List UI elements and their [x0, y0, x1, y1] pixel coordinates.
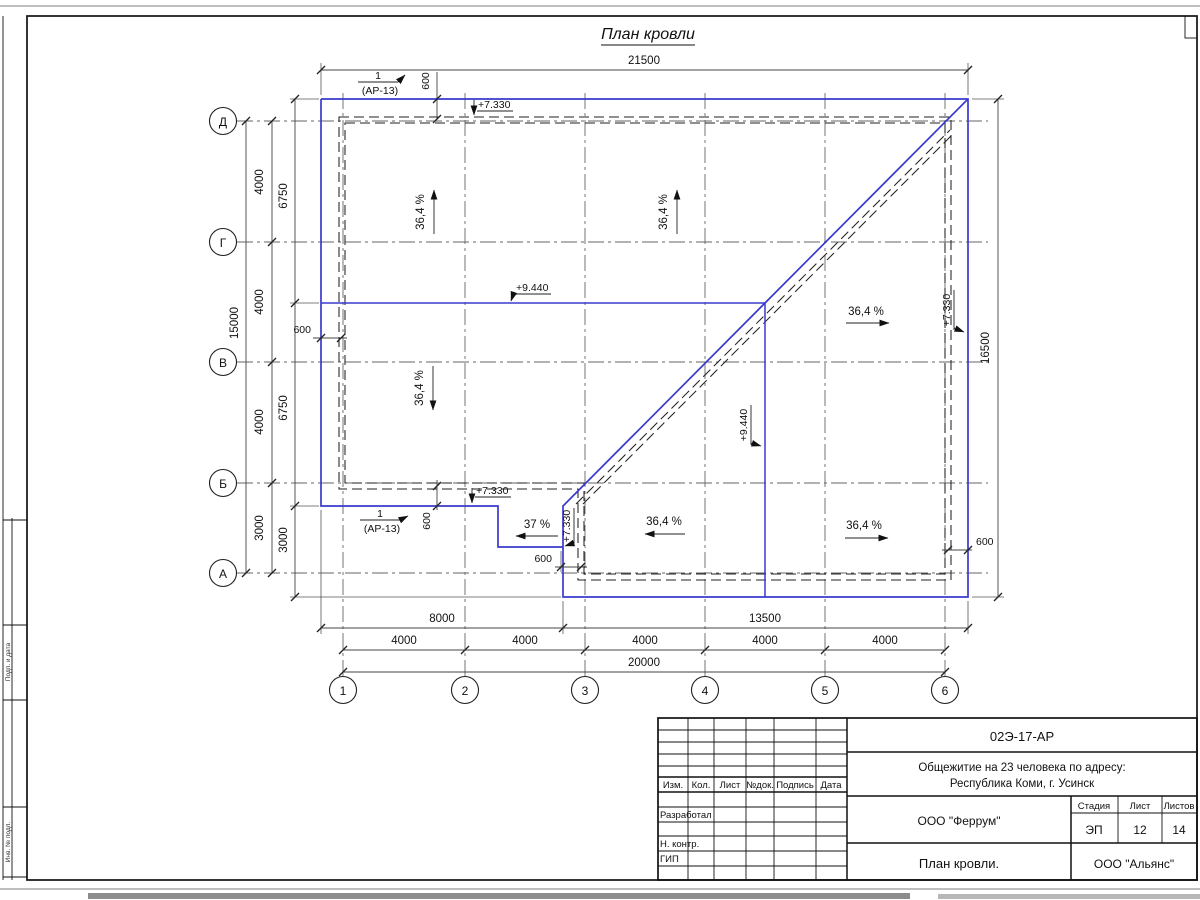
dim-bottom-grid: 4000: [872, 635, 898, 647]
grid-bubble-row: Б: [210, 470, 237, 497]
dim-left-inner: 6750: [278, 183, 290, 209]
grid-bubble-col: 5: [812, 677, 839, 704]
svg-text:36,4 %: 36,4 %: [658, 194, 670, 230]
dim-left-seg: 4000: [254, 169, 266, 195]
elevation-ridge-rotated: +9.440: [738, 405, 761, 446]
tb-sheet-name: План кровли.: [919, 856, 999, 871]
tb-org: ООО "Альянс": [1094, 857, 1174, 871]
grid-bubble-col: 1: [330, 677, 357, 704]
grid-bubble-row: Г: [210, 229, 237, 256]
svg-text:4: 4: [702, 684, 709, 698]
tb-object-line1: Общежитие на 23 человека по адресу:: [918, 762, 1125, 774]
dimension-lines: [246, 70, 998, 672]
svg-text:+7.330: +7.330: [941, 294, 953, 327]
wall-outline-dashed: [339, 117, 951, 580]
svg-text:36,4 %: 36,4 %: [846, 520, 882, 532]
dim-left-inner: 6750: [278, 395, 290, 421]
dim-bottom-total: 20000: [628, 657, 660, 669]
slope-label-down-left: 36,4 %: [414, 366, 433, 410]
svg-text:3: 3: [582, 684, 589, 698]
grid-bubble-col: 4: [692, 677, 719, 704]
grid-bubble-row: В: [210, 349, 237, 376]
svg-text:2: 2: [462, 684, 469, 698]
svg-text:Г: Г: [220, 236, 227, 250]
elevation-ridge: +9.440: [511, 282, 551, 301]
callout-number: 1: [377, 508, 383, 520]
dim-bottom-grid: 4000: [391, 635, 417, 647]
tb-col-list: Лист: [720, 780, 741, 791]
slope-label-right-mid: 36,4 %: [846, 306, 889, 323]
tb-company: ООО "Феррум": [918, 814, 1001, 828]
dim-bottom-seg: 8000: [429, 613, 455, 625]
corner-stamp-box: [1185, 16, 1197, 38]
dim-overhang-top: 600: [420, 72, 432, 90]
dim-overhang-notch: 600: [534, 553, 552, 565]
axis-grid-lines: [237, 93, 988, 676]
tb-object-line2: Республика Коми, г. Усинск: [950, 778, 1095, 790]
svg-text:36,4 %: 36,4 %: [414, 370, 426, 406]
callout-sheet-ref: (АР-13): [362, 85, 398, 97]
svg-text:+7.330: +7.330: [478, 99, 511, 111]
dim-right-total: 16500: [980, 332, 992, 364]
tb-col-data: Дата: [820, 780, 842, 791]
dim-bottom-seg: 13500: [749, 613, 781, 625]
tb-col-doc: №док.: [746, 780, 774, 791]
callout-sheet-ref: (АР-13): [364, 523, 400, 535]
roof-plan-drawing: Подп. и дата Инв. № подл. План кровли Д …: [0, 0, 1200, 900]
title-block: Изм. Кол. Лист №док. Подпись Дата Разраб…: [658, 718, 1197, 880]
dim-overhang-right: 600: [976, 536, 994, 548]
tb-sheets-label: Листов: [1164, 801, 1195, 812]
tb-stage-value: ЭП: [1085, 823, 1102, 837]
tb-row-gip: ГИП: [660, 854, 679, 865]
svg-text:36,4 %: 36,4 %: [415, 194, 427, 230]
drawing-sheet: Подп. и дата Инв. № подл. План кровли Д …: [0, 0, 1200, 900]
svg-text:+9.440: +9.440: [738, 409, 750, 442]
dim-left-seg: 4000: [254, 409, 266, 435]
tb-col-podpis: Подпись: [776, 780, 814, 791]
elevation-marks: +7.330 +7.330 +9.440 +9.440 +7.330 +7.33…: [472, 99, 964, 546]
svg-text:6: 6: [942, 684, 949, 698]
svg-text:А: А: [219, 567, 227, 581]
grid-bubble-row: А: [210, 560, 237, 587]
svg-text:+7.330: +7.330: [476, 485, 509, 497]
elevation-eave-bottom-left: +7.330: [472, 485, 511, 503]
svg-text:1: 1: [340, 684, 347, 698]
svg-text:36,4 %: 36,4 %: [848, 306, 884, 318]
strip-label-1: Подп. и дата: [5, 642, 12, 681]
dim-bottom-grid: 4000: [632, 635, 658, 647]
slope-label-porch: 37 %: [516, 519, 558, 536]
dim-bottom-grid: 4000: [512, 635, 538, 647]
svg-text:+7.330: +7.330: [561, 510, 573, 543]
svg-text:Б: Б: [219, 477, 227, 491]
tb-sheet-value: 12: [1133, 823, 1147, 837]
tb-stage-label: Стадия: [1078, 801, 1110, 812]
left-margin-strip: Подп. и дата Инв. № подл.: [3, 16, 27, 880]
drawing-title: План кровли: [601, 26, 695, 43]
svg-text:5: 5: [822, 684, 829, 698]
dim-overhang-left: 600: [293, 324, 311, 336]
svg-text:+9.440: +9.440: [516, 282, 549, 294]
slope-label-right-bottom: 36,4 %: [845, 520, 888, 538]
dim-left-inner: 3000: [278, 527, 290, 553]
detail-callout-top: 1 (АР-13): [358, 70, 405, 97]
grid-bubble-col: 3: [572, 677, 599, 704]
svg-text:36,4 %: 36,4 %: [646, 516, 682, 528]
callout-number: 1: [375, 70, 381, 82]
extension-lines: [290, 63, 1004, 634]
dim-left-total: 15000: [229, 307, 241, 339]
tb-sheet-label: Лист: [1130, 801, 1151, 812]
dim-overhang-porch: 600: [421, 512, 433, 530]
svg-text:В: В: [219, 356, 227, 370]
elevation-eave-top: +7.330: [474, 99, 513, 115]
grid-bubble-row: Д: [210, 108, 237, 135]
tb-col-kol: Кол.: [692, 780, 711, 791]
elevation-eave-notch-rotated: +7.330: [561, 508, 574, 546]
dimension-ticks: [242, 66, 1002, 676]
tb-sheets-value: 14: [1172, 823, 1186, 837]
grid-bubble-col: 2: [452, 677, 479, 704]
svg-text:Д: Д: [219, 115, 227, 129]
dim-left-seg: 4000: [254, 289, 266, 315]
tb-doc-number: 02Э-17-АР: [990, 729, 1054, 744]
dim-bottom-grid: 4000: [752, 635, 778, 647]
grid-bubble-col: 6: [932, 677, 959, 704]
dim-left-seg: 3000: [254, 515, 266, 541]
elevation-eave-right-rotated: +7.330: [941, 290, 964, 332]
detail-callout-bottom: 1 (АР-13): [360, 508, 408, 535]
strip-label-2: Инв. № подл.: [5, 822, 12, 863]
tb-row-developed: Разработал: [660, 810, 712, 821]
dim-top-total: 21500: [628, 55, 660, 67]
svg-text:37 %: 37 %: [524, 519, 550, 531]
tb-col-izm: Изм.: [663, 780, 683, 791]
tb-row-ncontr: Н. контр.: [660, 839, 699, 850]
slope-label-up-left: 36,4 %: [415, 190, 434, 234]
slope-label-left-bottom: 36,4 %: [645, 516, 685, 534]
slope-label-up-right: 36,4 %: [658, 190, 677, 234]
